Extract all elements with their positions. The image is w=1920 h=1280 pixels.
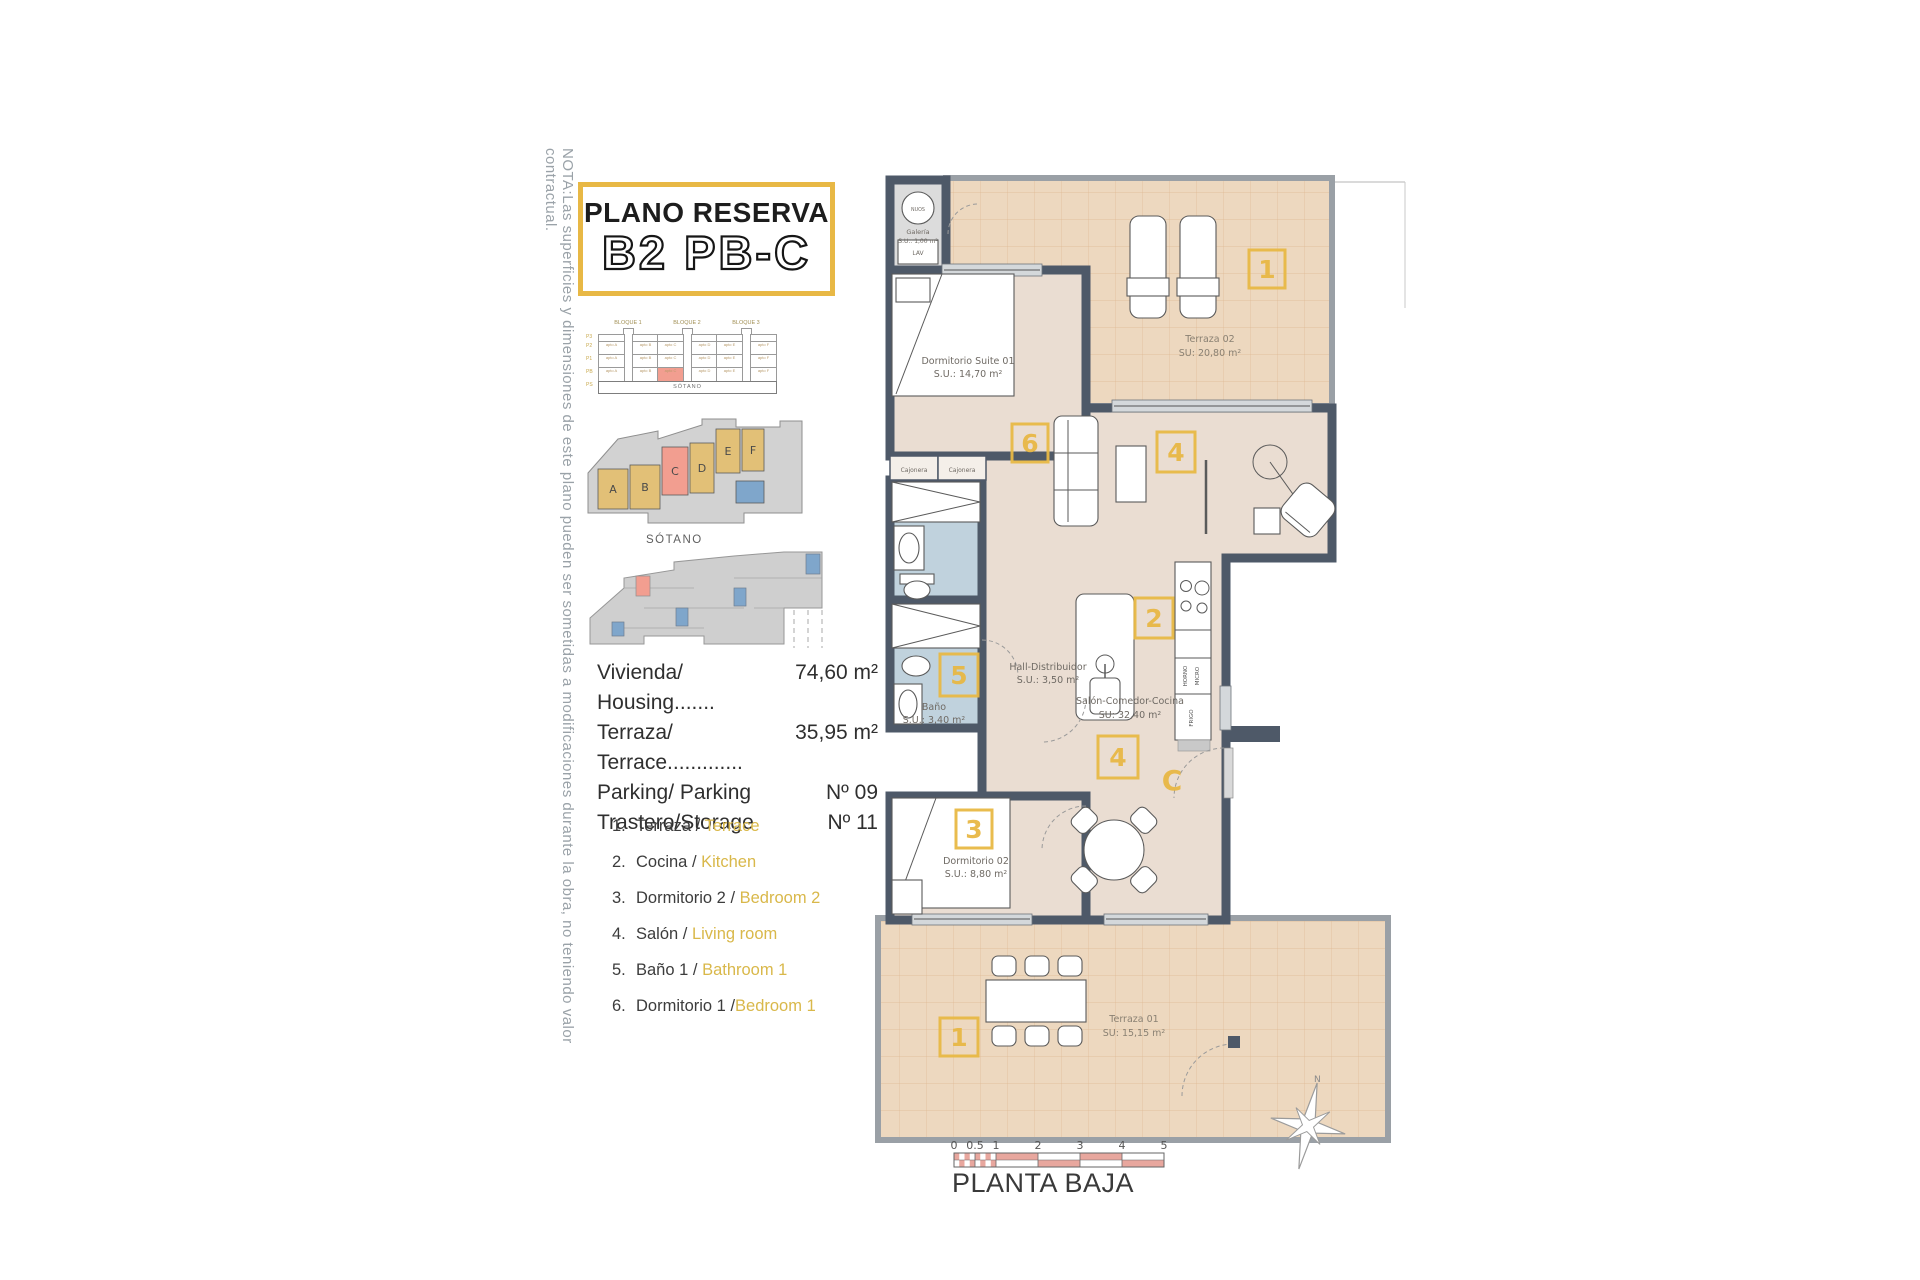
summary-label: Vivienda/ Housing....... xyxy=(597,658,795,718)
scale-blocks xyxy=(954,1153,1164,1167)
legend-number: 1. xyxy=(612,818,636,835)
legend-en: Bedroom 2 xyxy=(740,889,821,907)
summary-row: Vivienda/ Housing....... 74,60 m² xyxy=(597,658,878,718)
oven-label: HORNO xyxy=(1183,665,1189,686)
unit-code: B2 PB-C xyxy=(583,231,830,276)
legend-number: 2. xyxy=(612,854,636,871)
room-legend: 1.Terraza / Terrace 2.Cocina / Kitchen 3… xyxy=(612,818,892,1034)
scale-tick: 4 xyxy=(1119,1140,1126,1152)
basement-label: SÓTANO xyxy=(646,534,703,546)
legend-es: Terraza / xyxy=(636,817,704,835)
drawer-label: Cajonera xyxy=(901,467,928,474)
block-label: BLOQUE 3 xyxy=(722,320,770,326)
living-area: SU: 32,40 m² xyxy=(1099,710,1162,721)
terrace-02-area: SU: 20,80 m² xyxy=(1179,348,1242,359)
svg-text:6: 6 xyxy=(1021,429,1038,458)
block-label: BLOQUE 1 xyxy=(604,320,652,326)
toilet-icon xyxy=(902,656,930,676)
compass-rose: N xyxy=(1262,1072,1354,1170)
plan-reserva-page: { "note_vertical": "NOTA:Las superficies… xyxy=(0,0,1920,1280)
terrace-gate-post xyxy=(1228,1036,1240,1048)
outdoor-table-icon xyxy=(986,956,1086,1046)
basement-ground xyxy=(590,552,822,644)
legend-item: 4.Salón / Living room xyxy=(612,926,892,943)
block-label: BLOQUE 2 xyxy=(663,320,711,326)
disclaimer-vertical-note: NOTA:Las superficies y dimensiones de es… xyxy=(542,148,576,1073)
suite-name: Dormitorio Suite 01 xyxy=(921,356,1014,367)
basement-stair xyxy=(612,622,624,636)
basement-storage-highlighted xyxy=(636,576,650,596)
floor-label: PB xyxy=(586,369,593,375)
entrance-door-leaf xyxy=(1224,748,1233,798)
terrace-01-name: Terraza 01 xyxy=(1108,1014,1158,1025)
legend-es: Cocina / xyxy=(636,853,701,871)
bathroom-area: S.U.: 3,40 m² xyxy=(903,715,966,726)
legend-es: Dormitorio 2 / xyxy=(636,889,740,907)
legend-item: 6.Dormitorio 1 /Bedroom 1 xyxy=(612,998,892,1015)
title-box: PLANO RESERVA B2 PB-C xyxy=(578,182,835,296)
washer-label: LAV xyxy=(912,250,924,257)
basement-diagram xyxy=(584,548,832,656)
floor-plan: Cajonera Cajonera NUOS Galería S.U.: 1,0… xyxy=(872,138,1407,1150)
water-heater-label: NUOS xyxy=(911,207,925,213)
summary-row: Parking/ Parking Nº 09 xyxy=(597,778,878,808)
legend-number: 5. xyxy=(612,962,636,979)
legend-number: 6. xyxy=(612,998,636,1015)
terrace-02-name: Terraza 02 xyxy=(1184,334,1234,345)
plan-title: PLANO RESERVA xyxy=(583,197,830,229)
suite-area: S.U.: 14,70 m² xyxy=(934,369,1003,380)
svg-text:5: 5 xyxy=(950,661,967,690)
site-letter: C xyxy=(671,465,679,478)
legend-number: 3. xyxy=(612,890,636,907)
legend-es: Salón / xyxy=(636,925,692,943)
svg-text:1: 1 xyxy=(1258,255,1275,284)
unit-cell: apto E xyxy=(716,367,743,382)
floor-name: PLANTA BAJA xyxy=(952,1168,1134,1199)
summary-label: Terraza/ Terrace............. xyxy=(597,718,795,778)
legend-en: Terrace xyxy=(704,817,759,835)
svg-text:1: 1 xyxy=(950,1023,967,1052)
floor-label: P1 xyxy=(586,356,592,362)
washbasin-icon xyxy=(894,526,924,570)
svg-text:4: 4 xyxy=(1109,743,1126,772)
drawer-label: Cajonera xyxy=(949,467,976,474)
legend-en: Bathroom 1 xyxy=(702,961,787,979)
sofa-icon xyxy=(1054,416,1098,526)
bedroom-02-area: S.U.: 8,80 m² xyxy=(945,869,1008,880)
legend-item: 2.Cocina / Kitchen xyxy=(612,854,892,871)
galeria-name: Galería xyxy=(906,228,929,236)
entrance-letter: C xyxy=(1162,764,1183,797)
fridge-label: FRIGO xyxy=(1189,709,1195,727)
site-letter: F xyxy=(750,444,756,457)
scale-tick: 0.5 xyxy=(966,1140,984,1152)
svg-text:3: 3 xyxy=(965,815,982,844)
floor-label: P3 xyxy=(586,334,592,340)
legend-en: Living room xyxy=(692,925,777,943)
scale-tick: 1 xyxy=(993,1140,1000,1152)
basement-stair xyxy=(806,554,820,574)
site-plan-diagram: A B C D E F xyxy=(584,413,808,535)
legend-es: Dormitorio 1 / xyxy=(636,997,735,1015)
side-table-icon xyxy=(1254,508,1280,534)
site-letter: E xyxy=(725,445,732,458)
basement-stair xyxy=(676,608,688,626)
legend-en: Bedroom 1 xyxy=(735,997,816,1015)
scale-tick: 0 xyxy=(951,1140,958,1152)
summary-row: Terraza/ Terrace............. 35,95 m² xyxy=(597,718,878,778)
site-letter: B xyxy=(641,481,649,494)
legend-es: Baño 1 / xyxy=(636,961,702,979)
wardrobe-icon xyxy=(892,482,980,522)
galeria-area: S.U.: 1,00 m² xyxy=(898,238,938,245)
summary-value: 74,60 m² xyxy=(795,658,878,718)
legend-number: 4. xyxy=(612,926,636,943)
coffee-table-icon xyxy=(1116,446,1146,502)
unit-cell: apto A xyxy=(598,367,625,382)
microwave-label: MICRO xyxy=(1195,666,1201,685)
hall-area: S.U.: 3,50 m² xyxy=(1017,675,1080,686)
living-name: Salón-Comedor-Cocina xyxy=(1076,696,1184,707)
floor-label: P2 xyxy=(586,343,592,349)
legend-item: 1.Terraza / Terrace xyxy=(612,818,892,835)
unit-cell: apto B xyxy=(632,367,659,382)
compass-star-icon xyxy=(1262,1075,1354,1170)
legend-item: 3.Dormitorio 2 / Bedroom 2 xyxy=(612,890,892,907)
bathroom-name: Baño xyxy=(922,702,946,713)
scale-tick: 5 xyxy=(1161,1140,1168,1152)
svg-text:4: 4 xyxy=(1167,438,1184,467)
site-letter: A xyxy=(609,483,617,496)
hall-name: Hall-Distribuidor xyxy=(1009,662,1086,673)
floor-label: PS xyxy=(586,382,593,388)
summary-value: Nº 09 xyxy=(826,778,878,808)
legend-item: 5.Baño 1 / Bathroom 1 xyxy=(612,962,892,979)
legend-en: Kitchen xyxy=(701,853,756,871)
site-letter: D xyxy=(698,462,706,475)
terrace-01-area: SU: 15,15 m² xyxy=(1103,1028,1166,1039)
basement-stair xyxy=(734,588,746,606)
bedroom-02-name: Dormitorio 02 xyxy=(943,856,1009,867)
svg-text:2: 2 xyxy=(1145,604,1162,633)
scale-tick: 3 xyxy=(1077,1140,1084,1152)
surface-summary: Vivienda/ Housing....... 74,60 m² Terraz… xyxy=(597,658,878,838)
scale-tick: 2 xyxy=(1035,1140,1042,1152)
unit-cell: apto D xyxy=(691,367,718,382)
wardrobe-icon xyxy=(892,604,980,648)
unit-cell: apto F xyxy=(750,367,777,382)
basement-bar: SÓTANO xyxy=(598,381,777,394)
unit-cell-highlighted: apto C xyxy=(657,367,684,382)
summary-value: 35,95 m² xyxy=(795,718,878,778)
site-block-pool xyxy=(736,481,764,503)
summary-label: Parking/ Parking xyxy=(597,778,751,808)
window-sill xyxy=(1178,740,1210,751)
